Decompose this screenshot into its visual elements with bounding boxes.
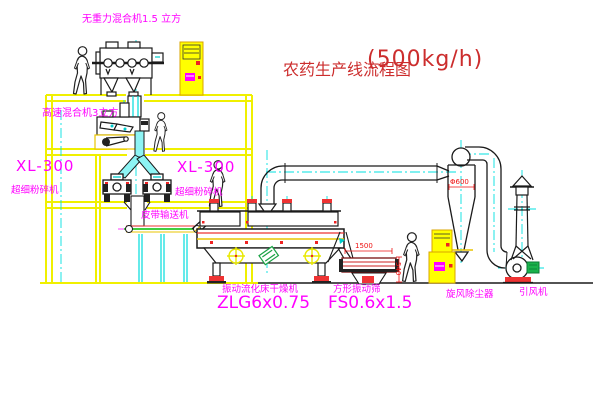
pulverizer-left	[103, 174, 131, 202]
exhaust-duct	[261, 163, 449, 204]
control-cabinet-top	[180, 42, 203, 95]
control-cabinet-bottom	[429, 230, 455, 283]
dimension-cyclone-diameter: Φ600	[450, 179, 469, 186]
dimension-screen-height: 540	[394, 262, 401, 275]
label-mill-right-name: 超细粉碎机	[175, 188, 223, 198]
worker-2	[154, 113, 167, 152]
label-mill-left-model: XL-300	[16, 159, 74, 174]
induced-draft-fan	[503, 257, 539, 283]
label-mill-right-model: XL-300	[177, 160, 235, 175]
label-screen-model: FS0.6x1.5	[328, 295, 412, 312]
label-cyclone: 旋风除尘器	[446, 290, 494, 300]
label-belt-conveyor: 皮带输送机	[141, 211, 189, 221]
label-mill-left-name: 超细粉碎机	[11, 186, 59, 196]
dimension-screen-length: 1500	[355, 243, 373, 250]
drawing-title-capacity: (500kg/h)	[367, 47, 483, 72]
cad-drawing-viewport: 农药生产线流程图 (500kg/h) 无重力混合机1.5 立方 高速混合机3立方…	[0, 0, 600, 403]
label-gravity-mixer: 无重力混合机1.5 立方	[82, 15, 181, 25]
label-dryer-model: ZLG6x0.75	[217, 295, 310, 312]
label-high-speed-mixer: 高速混合机3立方	[42, 109, 118, 119]
conveyor-legs	[139, 234, 187, 282]
pulverizer-right	[143, 174, 171, 202]
worker-4	[403, 233, 419, 282]
worker-1	[74, 47, 90, 94]
fluid-bed-dryer	[197, 199, 352, 284]
label-fan: 引风机	[519, 288, 548, 298]
